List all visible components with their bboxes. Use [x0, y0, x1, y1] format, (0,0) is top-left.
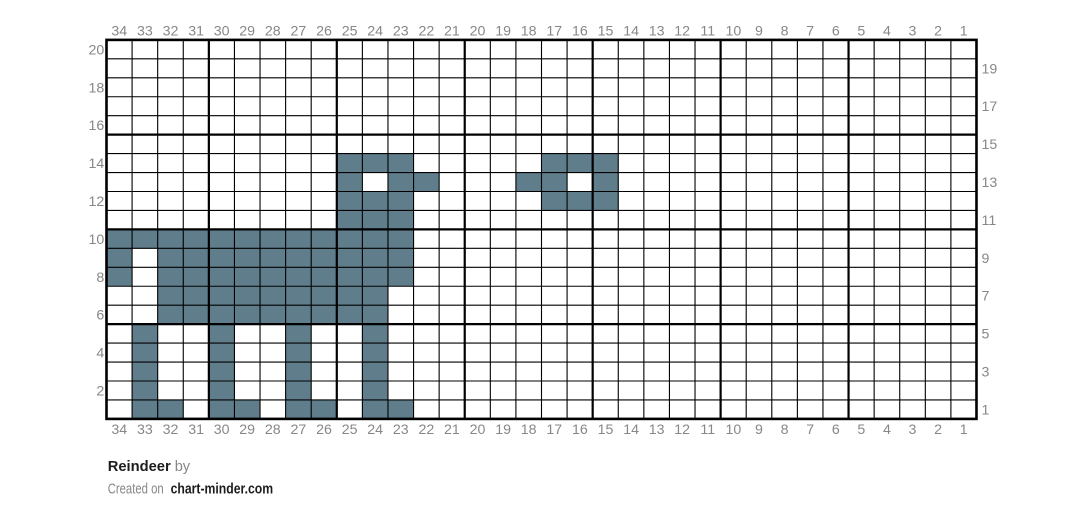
svg-text:6: 6	[96, 308, 104, 324]
svg-text:20: 20	[470, 422, 486, 438]
svg-text:13: 13	[649, 24, 665, 40]
svg-text:3: 3	[909, 422, 917, 438]
svg-text:18: 18	[89, 80, 105, 96]
svg-text:28: 28	[265, 24, 281, 40]
svg-text:13: 13	[649, 422, 665, 438]
svg-text:21: 21	[444, 422, 460, 438]
svg-text:1: 1	[960, 24, 968, 40]
svg-text:33: 33	[137, 24, 153, 40]
svg-text:6: 6	[832, 24, 840, 40]
svg-text:12: 12	[674, 24, 690, 40]
svg-text:30: 30	[214, 422, 230, 438]
svg-text:3: 3	[909, 24, 917, 40]
svg-text:31: 31	[188, 422, 204, 438]
svg-text:5: 5	[857, 24, 865, 40]
svg-text:7: 7	[806, 422, 814, 438]
svg-text:18: 18	[521, 24, 537, 40]
svg-text:6: 6	[832, 422, 840, 438]
svg-text:5: 5	[982, 327, 990, 343]
svg-text:3: 3	[982, 365, 990, 381]
svg-text:17: 17	[982, 99, 998, 115]
svg-text:1: 1	[960, 422, 968, 438]
svg-text:26: 26	[316, 422, 332, 438]
svg-text:13: 13	[982, 175, 998, 191]
svg-text:19: 19	[495, 24, 511, 40]
svg-text:22: 22	[419, 422, 435, 438]
svg-text:by: by	[175, 458, 191, 475]
svg-text:23: 23	[393, 422, 409, 438]
svg-text:5: 5	[857, 422, 865, 438]
svg-text:4: 4	[883, 422, 891, 438]
svg-text:24: 24	[367, 422, 383, 438]
svg-text:19: 19	[495, 422, 511, 438]
svg-text:14: 14	[89, 156, 105, 172]
svg-text:19: 19	[982, 61, 998, 77]
svg-text:10: 10	[89, 232, 105, 248]
svg-text:22: 22	[419, 24, 435, 40]
svg-text:27: 27	[291, 24, 307, 40]
svg-text:20: 20	[470, 24, 486, 40]
svg-text:8: 8	[781, 24, 789, 40]
svg-text:18: 18	[521, 422, 537, 438]
svg-text:Created on: Created on	[108, 481, 164, 498]
svg-text:15: 15	[598, 422, 614, 438]
svg-text:11: 11	[700, 24, 715, 40]
svg-text:2: 2	[934, 422, 942, 438]
svg-text:29: 29	[239, 24, 255, 40]
svg-text:31: 31	[188, 24, 204, 40]
svg-text:7: 7	[982, 289, 990, 305]
svg-text:10: 10	[726, 422, 742, 438]
svg-text:9: 9	[755, 24, 763, 40]
svg-text:17: 17	[546, 24, 562, 40]
svg-text:11: 11	[982, 213, 997, 229]
svg-text:16: 16	[89, 118, 105, 134]
svg-text:32: 32	[163, 422, 179, 438]
svg-text:16: 16	[572, 24, 588, 40]
svg-text:11: 11	[700, 422, 715, 438]
svg-text:29: 29	[239, 422, 255, 438]
svg-text:15: 15	[982, 137, 998, 153]
svg-text:2: 2	[934, 24, 942, 40]
svg-text:8: 8	[781, 422, 789, 438]
svg-text:28: 28	[265, 422, 281, 438]
svg-text:4: 4	[96, 346, 104, 362]
svg-text:17: 17	[546, 422, 562, 438]
svg-text:21: 21	[444, 24, 460, 40]
svg-text:12: 12	[674, 422, 690, 438]
svg-text:23: 23	[393, 24, 409, 40]
svg-text:chart-minder.com: chart-minder.com	[171, 481, 274, 498]
svg-text:14: 14	[623, 422, 639, 438]
svg-text:20: 20	[89, 42, 105, 58]
svg-text:9: 9	[755, 422, 763, 438]
svg-text:Reindeer: Reindeer	[108, 458, 171, 475]
svg-text:25: 25	[342, 422, 358, 438]
svg-text:16: 16	[572, 422, 588, 438]
svg-text:27: 27	[291, 422, 307, 438]
svg-text:12: 12	[89, 194, 105, 210]
svg-text:32: 32	[163, 24, 179, 40]
svg-text:30: 30	[214, 24, 230, 40]
svg-text:10: 10	[726, 24, 742, 40]
svg-text:2: 2	[96, 384, 104, 400]
svg-text:9: 9	[982, 251, 990, 267]
svg-text:7: 7	[806, 24, 814, 40]
svg-text:34: 34	[111, 24, 127, 40]
svg-text:14: 14	[623, 24, 639, 40]
svg-text:26: 26	[316, 24, 332, 40]
svg-text:33: 33	[137, 422, 153, 438]
svg-text:25: 25	[342, 24, 358, 40]
svg-text:15: 15	[598, 24, 614, 40]
svg-text:24: 24	[367, 24, 383, 40]
svg-text:8: 8	[96, 270, 104, 286]
svg-text:4: 4	[883, 24, 891, 40]
svg-text:34: 34	[111, 422, 127, 438]
svg-text:1: 1	[982, 402, 990, 418]
